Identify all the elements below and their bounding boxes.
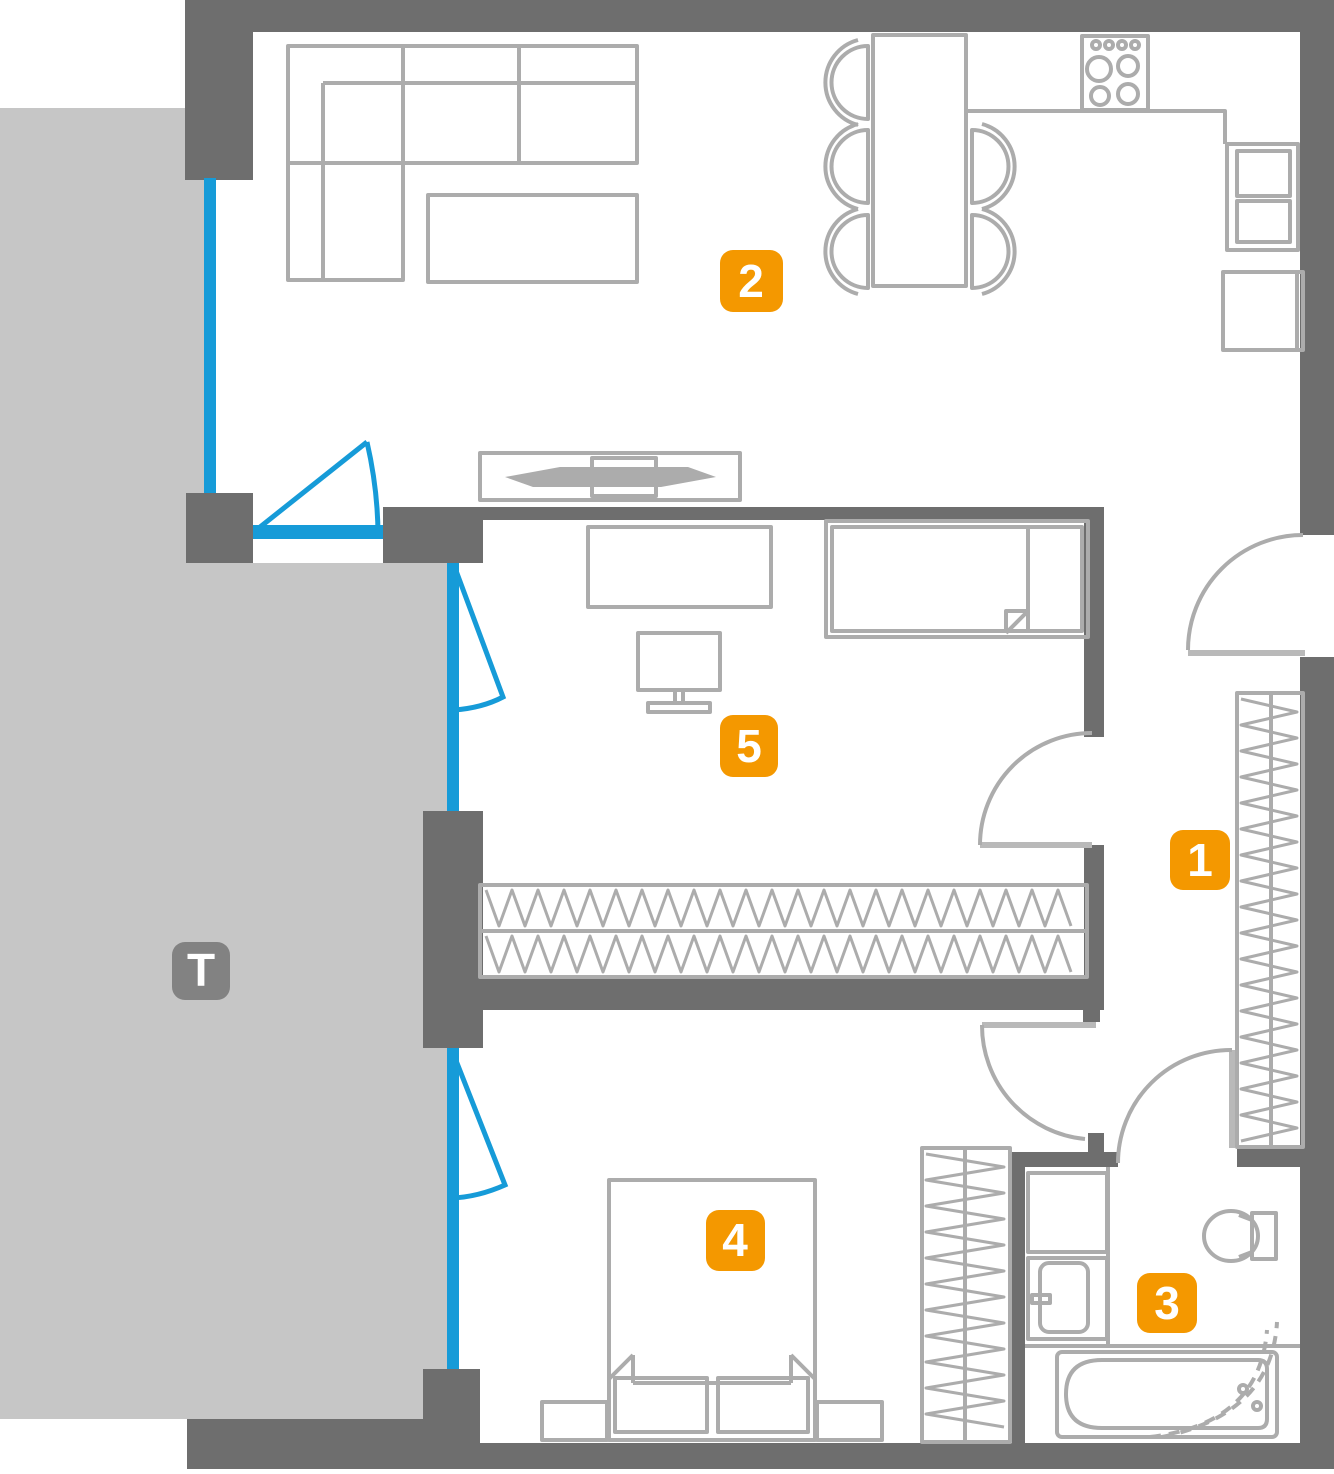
dining-chair xyxy=(825,124,868,209)
dining-kitchen-furniture xyxy=(825,35,1303,350)
svg-text:4: 4 xyxy=(722,1214,748,1266)
kitchen-cabinet xyxy=(1223,272,1303,350)
room-5-door-arc xyxy=(980,733,1092,845)
monitor-icon xyxy=(638,633,720,712)
dining-table xyxy=(873,35,966,286)
laundry-cabinet xyxy=(1028,1173,1107,1252)
room-badge-2: 2 xyxy=(720,250,783,312)
window-bedroom xyxy=(447,1048,459,1369)
window-bedroom-swing xyxy=(452,1058,505,1198)
terrace-door-leaf xyxy=(253,525,383,539)
bedroom-door-arc xyxy=(982,1025,1085,1139)
room-badge-3: 3 xyxy=(1137,1273,1197,1333)
dining-chair xyxy=(972,124,1015,209)
wardrobe-bedroom xyxy=(922,1148,1010,1442)
coffee-table xyxy=(428,195,637,282)
room-badge-1: 1 xyxy=(1170,830,1230,890)
nightstand-right xyxy=(817,1402,882,1440)
corner-sofa xyxy=(288,46,637,280)
wardrobe-room-5 xyxy=(480,885,1087,977)
terrace-badge: T xyxy=(172,942,230,1000)
wardrobe-hallway xyxy=(1237,693,1303,1147)
entry-door-arc xyxy=(1188,535,1303,650)
bedroom-furniture xyxy=(542,1148,1010,1442)
svg-text:T: T xyxy=(187,944,215,996)
dining-chair xyxy=(825,209,868,294)
washing-machine-icon xyxy=(1028,1258,1107,1339)
tv-icon xyxy=(505,467,716,487)
room-5-furniture xyxy=(480,521,1088,977)
svg-text:2: 2 xyxy=(738,255,764,307)
nightstand-left xyxy=(542,1402,607,1440)
svg-text:1: 1 xyxy=(1187,834,1213,886)
stove-icon xyxy=(1082,36,1148,110)
window-room-5 xyxy=(447,563,459,811)
pillow xyxy=(615,1378,707,1432)
svg-text:5: 5 xyxy=(736,720,762,772)
terrace-door-swing xyxy=(255,442,378,536)
window-living-room xyxy=(204,178,216,493)
toilet-icon xyxy=(1204,1211,1276,1261)
bathroom-door-arc xyxy=(1118,1050,1232,1163)
kitchen-sink xyxy=(1227,144,1298,250)
room-badge-4: 4 xyxy=(706,1210,765,1271)
dining-chair xyxy=(972,209,1015,294)
living-room-furniture xyxy=(288,46,740,500)
pillow xyxy=(718,1378,808,1432)
terrace-area xyxy=(0,108,450,1419)
single-bed xyxy=(826,521,1088,637)
svg-text:3: 3 xyxy=(1154,1277,1180,1329)
desk xyxy=(588,527,771,607)
dining-chair xyxy=(825,40,868,125)
floor-plan: 1 2 3 4 5 T xyxy=(0,0,1334,1469)
shower-screen xyxy=(1162,1322,1277,1437)
floor-plan-page: 1 2 3 4 5 T xyxy=(0,0,1334,1469)
room-badge-5: 5 xyxy=(720,715,778,777)
window-room-5-swing xyxy=(454,568,503,710)
